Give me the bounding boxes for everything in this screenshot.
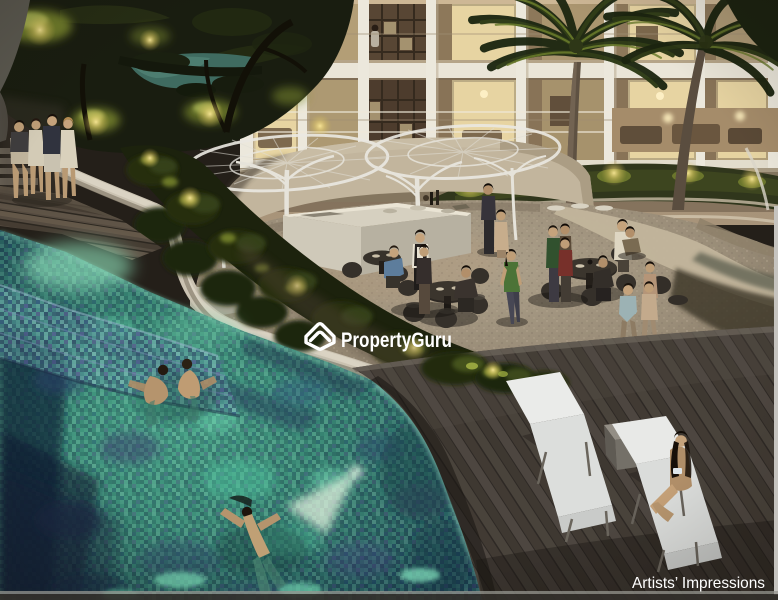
svg-text:Artists’ Impressions: Artists’ Impressions <box>632 575 765 592</box>
svg-text:PropertyGuru: PropertyGuru <box>341 329 452 352</box>
